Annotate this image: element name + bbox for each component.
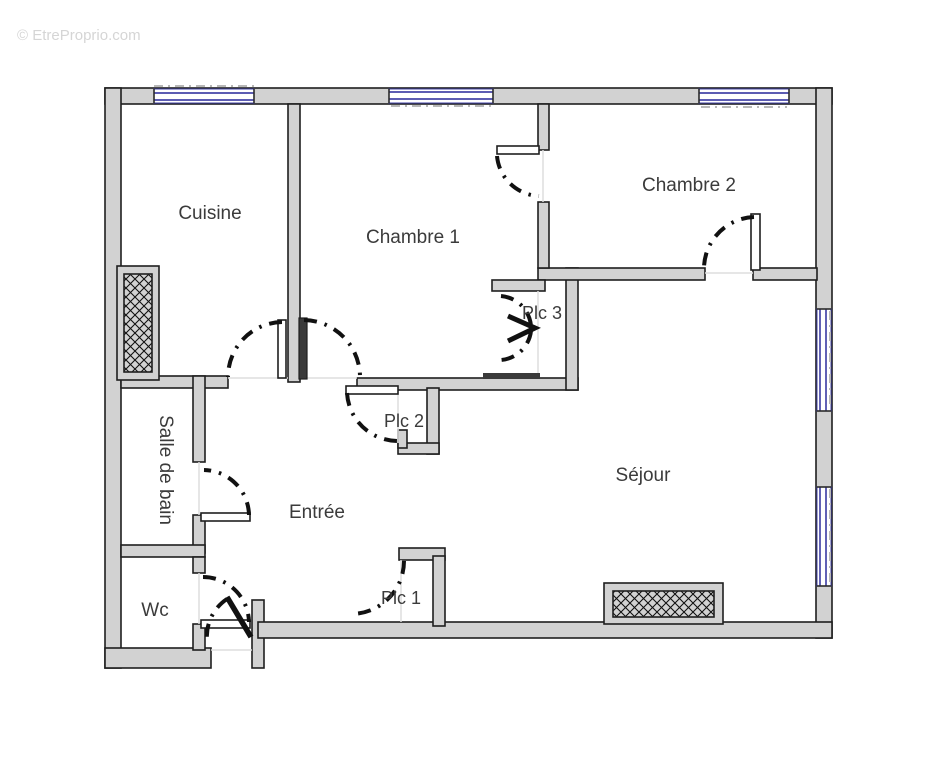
room-label-chambre1: Chambre 1 [366,227,460,248]
wall-wc-right-1 [193,557,205,573]
plc2-door-leaf [346,386,398,394]
wall-plc3-top [492,280,545,291]
wall-cuisine-chambre1 [288,104,300,382]
room-label-wc: Wc [141,600,168,621]
wall-plc3-sejour [566,268,578,390]
wall-plc2-jamb [398,430,407,448]
wall-bottom-left [105,648,211,668]
duct-cuisine [117,266,159,380]
chambre2-door-leaf [751,214,760,270]
window-chambre1 [389,89,493,106]
watermark-text: © EtreProprio.com [17,27,141,44]
floor-plan: © EtreProprio.com [0,0,928,762]
wall-chambre2-bottom-left [538,268,705,280]
room-label-plc1: Plc 1 [381,588,421,608]
plc3-threshold [483,373,540,379]
window-cuisine [154,86,254,103]
wall-plc1-right [433,556,445,626]
window-sejour-upper [817,309,831,411]
wall-bottom-right [258,622,832,638]
chambre1-door-leaf [299,318,307,379]
cuisine-door-leaf [278,320,286,378]
room-label-plc2: Plc 2 [384,411,424,431]
room-label-salle-de-bain: Salle de bain [155,415,176,525]
room-label-cuisine: Cuisine [178,203,241,224]
chambre1-chambre2-door-leaf [497,146,539,154]
room-label-sejour: Séjour [616,465,672,486]
duct-sejour [604,583,723,624]
wall-chambre2-bottom-right [753,268,817,280]
wall-sdb-wc [121,545,205,557]
room-label-chambre2: Chambre 2 [642,175,736,196]
wall-chambre1-chambre2-1 [538,104,549,150]
wall-sdb-right-1 [193,376,205,462]
room-label-entree: Entrée [289,502,345,523]
room-label-plc3: Plc 3 [522,303,562,323]
window-sejour-lower [817,487,831,586]
sdb-door-leaf [201,513,250,521]
wall-chambre1-chambre2-2 [538,202,549,268]
